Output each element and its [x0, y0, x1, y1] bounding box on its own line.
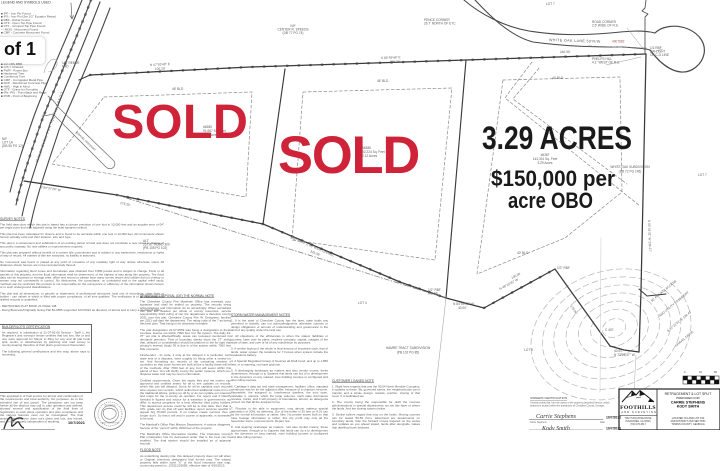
svg-text:KODY SMITH: KODY SMITH: [677, 405, 700, 409]
svg-text:(706) 970-6617: (706) 970-6617: [630, 424, 646, 426]
svg-text:2.5' WIDE OF R.S.: 2.5' WIDE OF R.S.: [592, 24, 619, 28]
svg-text:(PB 102 PG 85): (PB 102 PG 85): [397, 351, 420, 355]
svg-text:LAND SURVEYING: LAND SURVEYING: [619, 410, 657, 414]
svg-text:26.7' NORTH OF ETC: 26.7' NORTH OF ETC: [424, 22, 456, 26]
svg-text:LOT 4: LOT 4: [358, 301, 367, 305]
svg-text:N 48°12'25" W: N 48°12'25" W: [499, 278, 519, 291]
svg-text:HIAWASSEE, GA 30546: HIAWASSEE, GA 30546: [626, 420, 652, 423]
svg-text:1/2" RBF: 1/2" RBF: [557, 266, 570, 270]
svg-text:80: 80: [714, 370, 717, 374]
svg-text:LAND SURVEYOR: LAND SURVEYOR: [101, 422, 120, 425]
svg-text:S 80°18'54" E 50' WIDE GRAVEL: S 80°18'54" E 50' WIDE GRAVEL: [290, 235, 335, 257]
svg-text:property is located within the: property is located within the jurisdict…: [530, 405, 605, 408]
svg-text:7382 TURQUOISE DRIVE: 7382 TURQUOISE DRIVE: [624, 418, 651, 420]
svg-text:HAMRE TRACT SUBDIVISION: HAMRE TRACT SUBDIVISION: [386, 346, 431, 350]
svg-text:275.25': 275.25': [120, 201, 131, 207]
svg-text:(DB 55 PG 12): (DB 55 PG 12): [2, 144, 23, 148]
svg-text:OWNERS CERTIFICATION: OWNERS CERTIFICATION: [530, 396, 567, 400]
svg-text:TOWNS COUNTY, GEORGIA: TOWNS COUNTY, GEORGIA: [671, 423, 705, 426]
svg-text:acre OBO: acre OBO: [508, 188, 593, 213]
svg-text:GEORGIA: GEORGIA: [104, 405, 116, 408]
svg-text:WHITE OAK LANE 50'R/W: WHITE OAK LANE 50'R/W: [549, 38, 601, 44]
svg-text:4907682: 4907682: [612, 40, 625, 44]
svg-text:178.06': 178.06': [569, 304, 578, 315]
svg-text:40.00': 40.00': [458, 306, 467, 310]
svg-text:46' BLD: 46' BLD: [377, 79, 389, 83]
svg-text:PREPARED FOR: PREPARED FOR: [676, 396, 700, 400]
svg-text:N 73°28'37" W: N 73°28'37" W: [614, 353, 635, 357]
svg-text:40' BLD: 40' BLD: [517, 251, 529, 255]
svg-text:246.98': 246.98': [560, 50, 571, 54]
svg-text:LOT 5: LOT 5: [524, 348, 533, 352]
svg-text:S 05°41'31" W 236.27': S 05°41'31" W 236.27': [647, 220, 652, 252]
svg-text:OF C-D LINE: OF C-D LINE: [650, 53, 669, 57]
svg-text:Date: Date: [600, 421, 606, 424]
svg-text:46' BLD: 46' BLD: [172, 87, 184, 91]
svg-text:0: 0: [684, 370, 686, 374]
svg-text:Carrie Stephens: Carrie Stephens: [530, 421, 547, 424]
svg-text:LOT 7: LOT 7: [698, 173, 707, 177]
svg-text:388.39': 388.39': [390, 60, 401, 64]
svg-text:4.1" WEST OF R.S.: 4.1" WEST OF R.S.: [592, 61, 620, 65]
svg-text:LOT 7: LOT 7: [546, 2, 555, 6]
svg-text:Carrie Stephens: Carrie Stephens: [536, 413, 577, 420]
svg-text:3.29 ACRES: 3.29 ACRES: [482, 120, 632, 156]
svg-text:10/7/2021: 10/7/2021: [606, 427, 621, 431]
svg-text:C 497: C 497: [605, 328, 614, 332]
svg-text:Kody Smith: Kody Smith: [541, 426, 570, 430]
svg-text:40: 40: [699, 370, 702, 374]
svg-text:105.28': 105.28': [155, 66, 166, 71]
svg-text:10/7/2021: 10/7/2021: [606, 416, 621, 420]
svg-text:(DB 77 PG 74): (DB 77 PG 74): [283, 31, 304, 35]
svg-text:0.3' SE: 0.3' SE: [428, 292, 438, 296]
svg-text:44' BLD: 44' BLD: [552, 76, 564, 80]
svg-text:GRAVEL DRIVE: GRAVEL DRIVE: [674, 330, 694, 348]
